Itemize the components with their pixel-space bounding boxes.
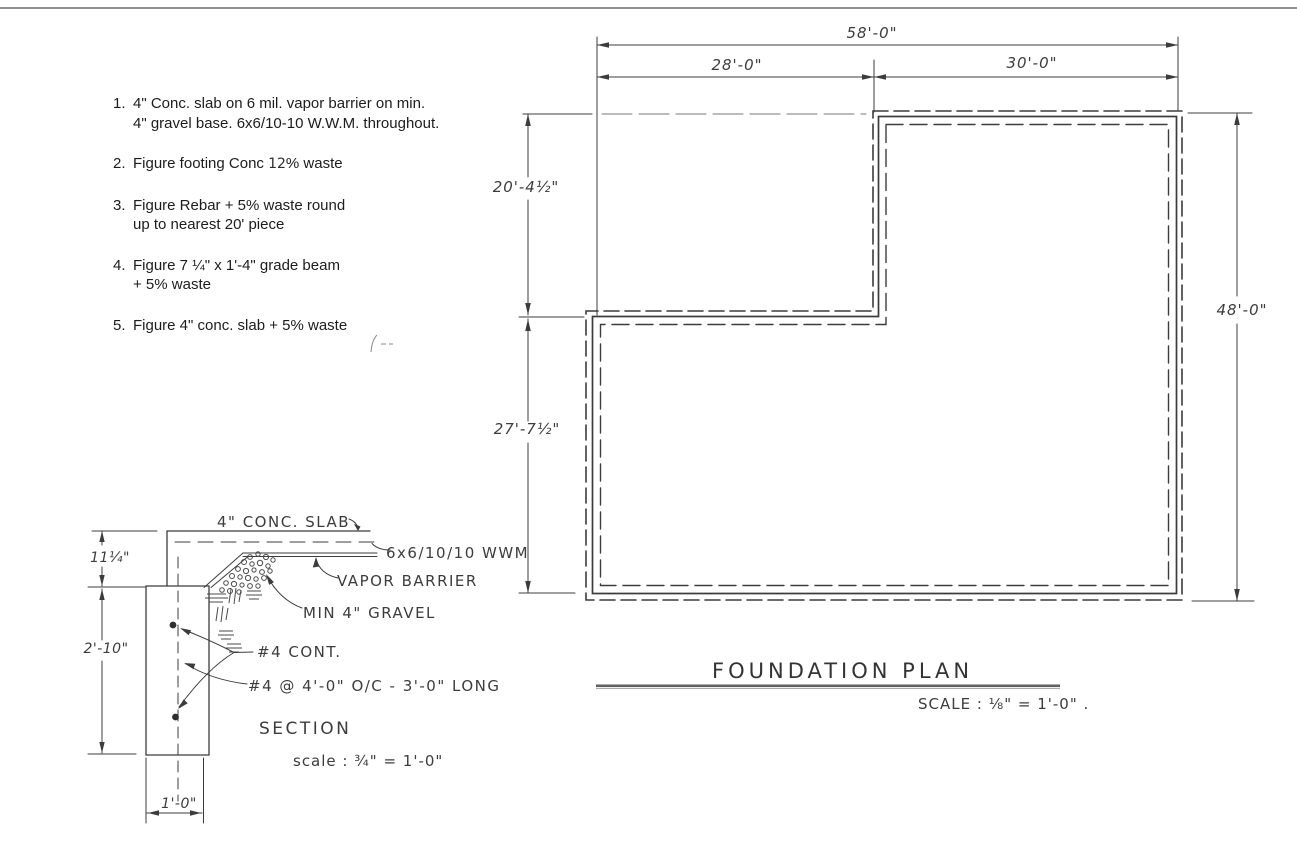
slab-edge-diagonal — [204, 553, 248, 588]
arrowhead — [597, 42, 609, 48]
plan-dim-right-height: 48'-0" — [1216, 301, 1267, 319]
arrowhead — [1166, 42, 1178, 48]
arrowhead — [862, 74, 874, 80]
title-underline-shadow — [596, 688, 1060, 689]
section-dim-footing-width: 1'-0" — [161, 796, 197, 812]
title-underline — [596, 685, 1060, 688]
section-footing — [146, 557, 209, 801]
arrowhead — [525, 581, 531, 593]
arrowhead — [184, 663, 195, 669]
section-dim-footing-depth: 2'-10" — [83, 641, 128, 657]
arrowhead — [1166, 74, 1178, 80]
arrowhead — [99, 742, 104, 753]
label-conc-slab: 4" CONC. SLAB — [217, 513, 350, 531]
section-title: SECTION — [259, 719, 351, 739]
plan-dim-total-width: 58'-0" — [846, 24, 897, 42]
rebar-dot — [170, 622, 177, 629]
leader-rebar-continuous — [179, 629, 253, 707]
plan-title: FOUNDATION PLAN — [712, 659, 973, 683]
label-wwm: 6x6/10/10 WWM — [386, 544, 529, 562]
foundation-plan-outline — [586, 111, 1182, 600]
label-gravel: MIN 4" GRAVEL — [303, 604, 436, 622]
section-dimensions: 11¼" 2'-10" 1'-0" — [83, 531, 203, 823]
arrowhead — [1234, 589, 1240, 601]
plan-dim-right-width: 30'-0" — [1006, 54, 1057, 72]
plan-title-block: FOUNDATION PLAN SCALE : ⅛" = 1'-0" . — [596, 659, 1089, 713]
section-detail: 11¼" 2'-10" 1'-0" — [83, 513, 529, 823]
arrowhead — [313, 557, 319, 568]
label-rebar-continuous: #4 CONT. — [257, 643, 342, 661]
arrowhead — [597, 74, 609, 80]
plan-wall-outer-dashed — [586, 111, 1182, 600]
rebar-dot — [172, 714, 179, 721]
arrowhead — [178, 699, 188, 709]
leader-vapor-barrier — [316, 559, 338, 578]
leader-rebar-dowels — [186, 664, 247, 684]
arrowhead — [99, 531, 104, 542]
section-labels: 4" CONC. SLAB 6x6/10/10 WWM VAPOR BARRIE… — [217, 513, 529, 695]
arrowhead — [148, 810, 159, 815]
section-title-block: SECTION scale : ¾" = 1'-0" — [259, 719, 443, 770]
arrowhead — [525, 114, 531, 126]
plan-wall-solid — [593, 117, 1177, 594]
arrowhead — [874, 74, 886, 80]
arrowhead — [180, 628, 191, 635]
plan-dim-left-width: 28'-0" — [711, 56, 762, 74]
arrowhead — [266, 574, 274, 585]
arrowhead — [525, 303, 531, 315]
label-vapor-barrier: VAPOR BARRIER — [337, 572, 478, 590]
plan-wall-inner-dashed — [601, 125, 1169, 586]
plan-scale-note: SCALE : ⅛" = 1'-0" . — [918, 695, 1089, 713]
label-rebar-dowels: #4 @ 4'-0" O/C - 3'-0" LONG — [248, 677, 501, 695]
arrowhead — [1234, 113, 1240, 125]
plan-dim-upper-left-height: 20'-4½" — [493, 178, 560, 196]
section-dim-slab-edge-depth: 11¼" — [90, 550, 130, 566]
plan-dim-lower-left-height: 27'-7½" — [494, 420, 561, 438]
arrowhead — [99, 589, 104, 600]
arrowhead — [525, 319, 531, 331]
drawing-canvas: 58'-0" 28'-0" 30'-0" 20'-4½" 27'-7½" 48'… — [0, 0, 1297, 846]
stray-pen-mark — [371, 335, 393, 352]
drawing-sheet: 1. 4" Conc. slab on 6 mil. vapor barrier… — [0, 0, 1297, 846]
arrowhead — [99, 575, 104, 586]
section-scale-note: scale : ¾" = 1'-0" — [293, 752, 443, 770]
